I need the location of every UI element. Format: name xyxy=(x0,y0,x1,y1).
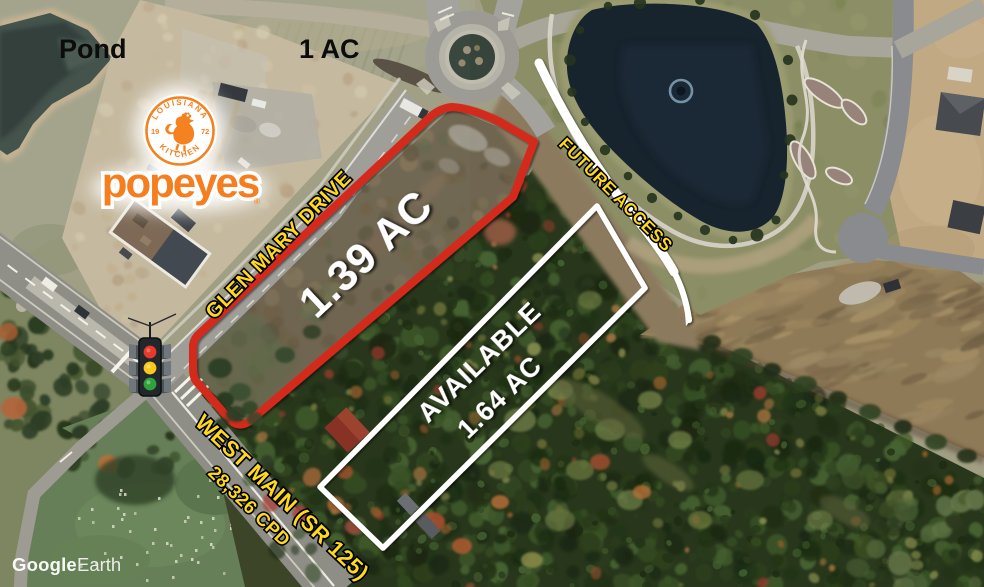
svg-text:popeyes: popeyes xyxy=(102,159,259,206)
svg-text:Pond: Pond xyxy=(59,34,127,64)
svg-text:Google: Google xyxy=(12,554,77,575)
svg-text:72: 72 xyxy=(201,127,209,136)
svg-text:19: 19 xyxy=(151,127,159,136)
svg-text:1 AC: 1 AC xyxy=(299,34,360,64)
svg-text:®: ® xyxy=(254,197,260,206)
svg-text:Earth: Earth xyxy=(77,554,121,575)
